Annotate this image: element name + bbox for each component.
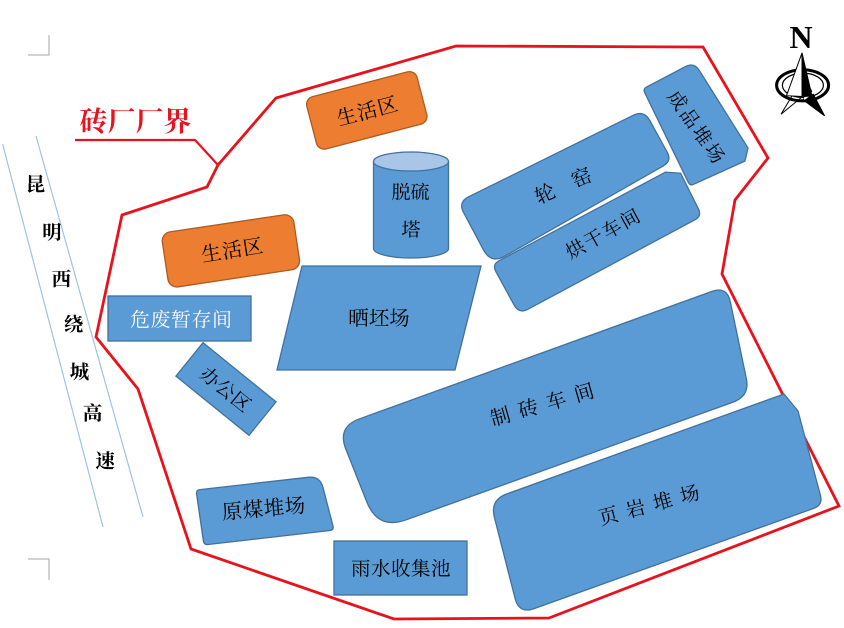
svg-text:N: N	[789, 19, 812, 55]
